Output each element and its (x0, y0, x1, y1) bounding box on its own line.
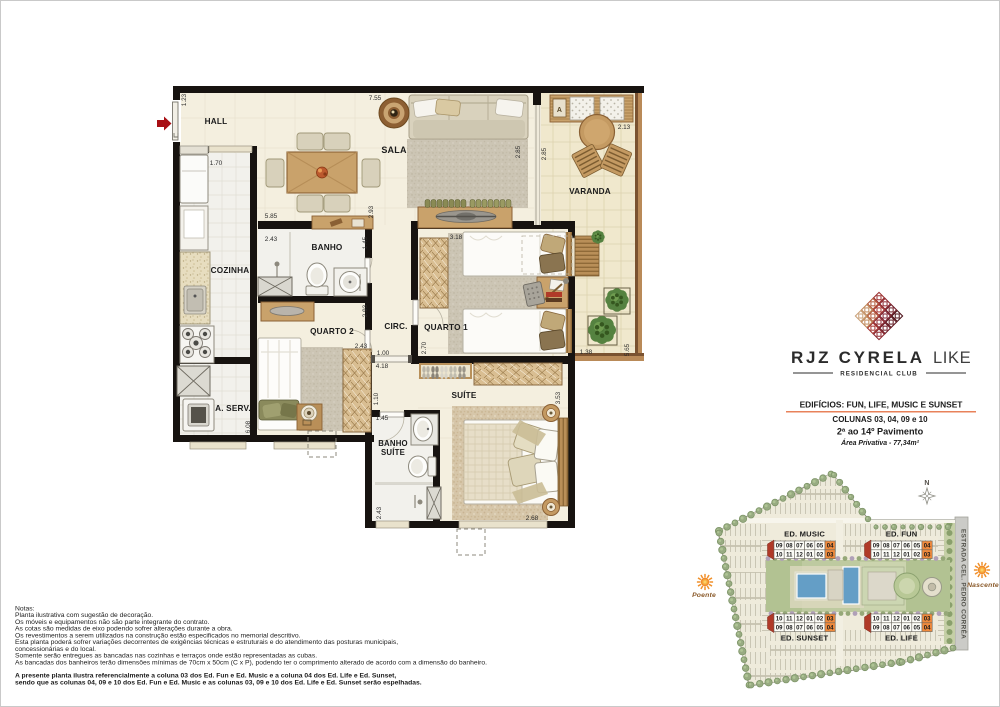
svg-text:01: 01 (806, 617, 813, 623)
svg-text:02: 02 (914, 552, 921, 558)
svg-text:2.43: 2.43 (355, 343, 368, 350)
svg-text:04: 04 (924, 625, 931, 631)
svg-text:09: 09 (873, 544, 880, 550)
svg-text:QUARTO 2: QUARTO 2 (310, 327, 354, 336)
svg-text:06: 06 (806, 625, 813, 631)
svg-text:1.70: 1.70 (210, 160, 223, 167)
svg-text:QUARTO 1: QUARTO 1 (424, 323, 468, 332)
svg-text:2ª ao 14º Pavimento: 2ª ao 14º Pavimento (837, 427, 924, 437)
svg-text:BANHO: BANHO (311, 243, 342, 252)
svg-text:10: 10 (776, 552, 783, 558)
svg-text:A. SERV.: A. SERV. (215, 404, 251, 413)
svg-text:07: 07 (893, 544, 900, 550)
svg-text:5.85: 5.85 (265, 213, 278, 220)
svg-text:04: 04 (924, 544, 931, 550)
svg-text:03: 03 (827, 617, 834, 623)
svg-text:RESIDENCIAL CLUB: RESIDENCIAL CLUB (840, 371, 918, 378)
svg-text:02: 02 (817, 617, 824, 623)
svg-text:2.68: 2.68 (526, 515, 539, 522)
svg-text:2.70: 2.70 (421, 341, 428, 354)
svg-text:BANHO: BANHO (378, 439, 408, 448)
svg-text:06: 06 (903, 625, 910, 631)
svg-text:1.45: 1.45 (376, 415, 389, 422)
svg-text:08: 08 (786, 544, 793, 550)
svg-text:SUÍTE: SUÍTE (451, 390, 476, 400)
svg-text:07: 07 (893, 625, 900, 631)
svg-text:11: 11 (786, 552, 793, 558)
svg-text:As bancadas dos banheiros terã: As bancadas dos banheiros terão dimensõe… (15, 659, 487, 666)
svg-text:VARANDA: VARANDA (569, 187, 611, 196)
svg-text:11: 11 (883, 552, 890, 558)
svg-text:7.55: 7.55 (369, 95, 382, 102)
svg-text:ED. MUSIC: ED. MUSIC (784, 530, 825, 539)
svg-text:1.45: 1.45 (362, 236, 369, 249)
svg-text:01: 01 (903, 617, 910, 623)
svg-text:11: 11 (883, 617, 890, 623)
svg-text:10: 10 (776, 617, 783, 623)
svg-text:05: 05 (914, 544, 921, 550)
svg-text:ED. FUN: ED. FUN (886, 530, 918, 539)
svg-text:12: 12 (893, 552, 900, 558)
svg-text:05: 05 (914, 625, 921, 631)
svg-text:2.13: 2.13 (618, 124, 631, 131)
svg-text:04: 04 (827, 625, 834, 631)
svg-text:2.93: 2.93 (368, 205, 375, 218)
svg-text:08: 08 (786, 625, 793, 631)
svg-text:COZINHA: COZINHA (211, 266, 250, 275)
svg-text:SALA: SALA (381, 145, 407, 155)
svg-text:12: 12 (796, 552, 803, 558)
svg-text:10: 10 (873, 552, 880, 558)
svg-text:03: 03 (827, 552, 834, 558)
svg-text:2.85: 2.85 (515, 145, 522, 158)
svg-text:2.43: 2.43 (376, 506, 383, 519)
svg-text:3.53: 3.53 (555, 391, 562, 404)
svg-text:2.93: 2.93 (362, 304, 369, 317)
svg-text:COLUNAS 03, 04, 09 e 10: COLUNAS 03, 04, 09 e 10 (832, 415, 928, 424)
svg-text:4.18: 4.18 (376, 363, 389, 370)
svg-text:12: 12 (893, 617, 900, 623)
svg-text:07: 07 (796, 544, 803, 550)
svg-text:01: 01 (903, 552, 910, 558)
svg-text:N: N (924, 480, 929, 487)
svg-text:01: 01 (806, 552, 813, 558)
svg-text:EDIFÍCIOS: FUN, LIFE, MUSIC E: EDIFÍCIOS: FUN, LIFE, MUSIC E SUNSET (800, 399, 964, 410)
svg-text:ED. LIFE: ED. LIFE (885, 634, 918, 643)
svg-text:02: 02 (817, 552, 824, 558)
svg-text:1.23: 1.23 (181, 93, 188, 106)
svg-text:RJZ CYRELA: RJZ CYRELA (791, 348, 925, 367)
svg-text:06: 06 (903, 544, 910, 550)
svg-text:09: 09 (776, 625, 783, 631)
svg-text:HALL: HALL (205, 117, 228, 126)
svg-text:02: 02 (914, 617, 921, 623)
svg-text:09: 09 (776, 544, 783, 550)
svg-text:ED. SUNSET: ED. SUNSET (781, 634, 829, 643)
svg-text:05: 05 (817, 544, 824, 550)
svg-text:LIKE: LIKE (933, 349, 971, 367)
svg-text:1.38: 1.38 (580, 349, 593, 356)
svg-text:Poente: Poente (692, 592, 716, 599)
svg-text:08: 08 (883, 625, 890, 631)
svg-text:CIRC.: CIRC. (384, 322, 407, 331)
svg-text:2.85: 2.85 (541, 147, 548, 160)
svg-text:1.10: 1.10 (373, 392, 380, 405)
svg-text:07: 07 (796, 625, 803, 631)
svg-text:Área Privativa - 77,34m²: Área Privativa - 77,34m² (840, 438, 919, 447)
svg-text:10: 10 (873, 617, 880, 623)
svg-text:3.18: 3.18 (450, 234, 463, 241)
svg-text:08: 08 (883, 544, 890, 550)
svg-text:Nascente: Nascente (967, 582, 999, 589)
svg-text:03: 03 (924, 552, 931, 558)
svg-text:SUÍTE: SUÍTE (381, 448, 405, 457)
svg-text:05: 05 (817, 625, 824, 631)
svg-text:sendo que as colunas 04, 09 e: sendo que as colunas 04, 09 e 10 dos Ed.… (15, 679, 422, 686)
svg-text:6.08: 6.08 (245, 420, 252, 433)
svg-text:12: 12 (796, 617, 803, 623)
svg-text:5.65: 5.65 (624, 343, 631, 356)
svg-text:09: 09 (873, 625, 880, 631)
svg-text:2.43: 2.43 (265, 236, 278, 243)
svg-text:A: A (557, 107, 562, 114)
svg-text:06: 06 (806, 544, 813, 550)
svg-text:1.00: 1.00 (377, 350, 390, 357)
svg-text:03: 03 (924, 617, 931, 623)
svg-text:04: 04 (827, 544, 834, 550)
svg-text:11: 11 (786, 617, 793, 623)
